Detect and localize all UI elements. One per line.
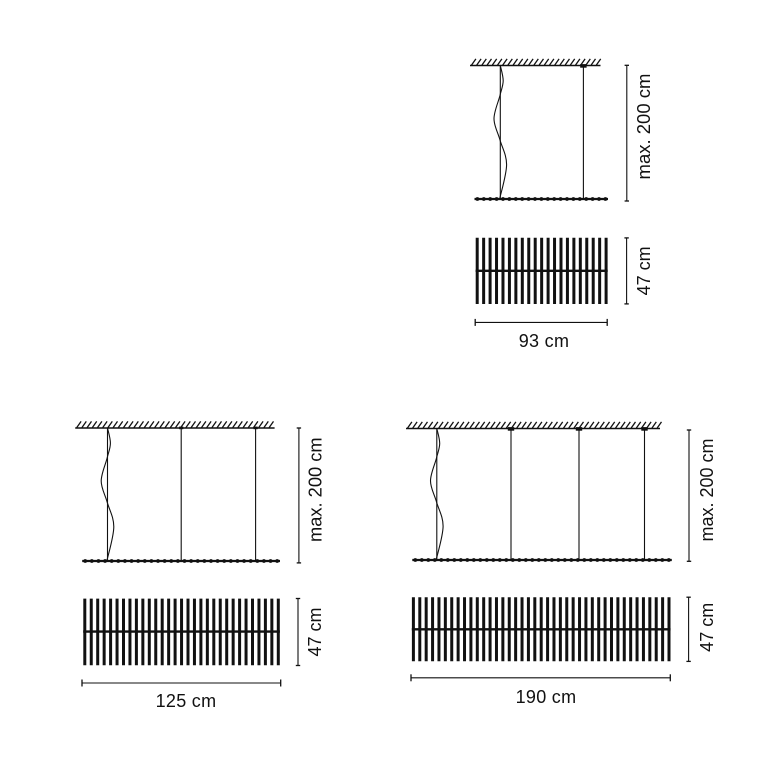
svg-text:47 cm: 47 cm [305,607,325,656]
svg-text:47 cm: 47 cm [634,246,654,295]
svg-text:93 cm: 93 cm [519,331,570,351]
svg-text:47 cm: 47 cm [697,603,717,652]
svg-text:125 cm: 125 cm [156,691,217,711]
svg-text:max. 200 cm: max. 200 cm [304,437,325,542]
svg-text:max. 200 cm: max. 200 cm [697,438,717,541]
svg-text:190 cm: 190 cm [516,687,577,707]
svg-text:max. 200 cm: max. 200 cm [633,74,654,180]
